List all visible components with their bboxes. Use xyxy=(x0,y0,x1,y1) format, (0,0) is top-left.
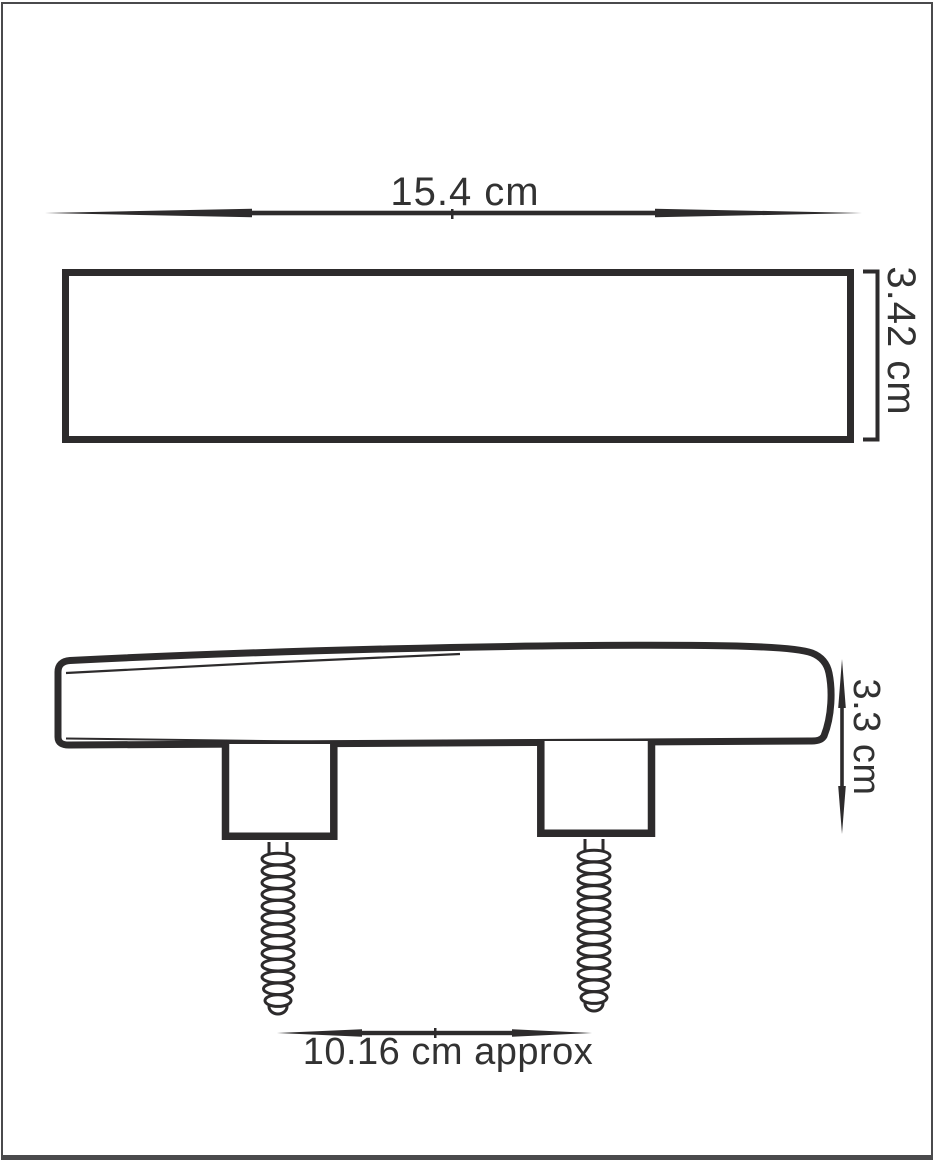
top-view-thickness-label: 3.42 cm xyxy=(879,266,923,415)
mounting-block-1 xyxy=(226,744,334,836)
handle-side-profile xyxy=(58,645,831,745)
arrow-down-icon xyxy=(838,786,846,834)
arrow-left-icon xyxy=(45,209,252,218)
mounting-block-2 xyxy=(541,741,652,833)
side-view-height-label: 3.3 cm xyxy=(845,678,887,795)
arrow-right-icon xyxy=(655,209,862,218)
technical-drawing-page: 15.4 cm 3.42 cm xyxy=(0,0,937,1162)
screw-2 xyxy=(578,839,610,1011)
arrow-up-icon xyxy=(838,659,846,708)
top-view-width-label: 15.4 cm xyxy=(390,170,539,214)
stud-spacing-label: 10.16 cm approx xyxy=(303,1031,594,1073)
side-height-dimension-line xyxy=(838,659,846,834)
thickness-bracket xyxy=(863,272,878,440)
dimension-shaft xyxy=(840,706,844,788)
center-tick xyxy=(451,209,454,219)
screw-1 xyxy=(262,842,294,1014)
handle-dimension-drawing: 15.4 cm 3.42 cm xyxy=(0,0,937,1162)
top-view-outline xyxy=(66,273,851,440)
top-width-dimension-line xyxy=(45,209,862,219)
